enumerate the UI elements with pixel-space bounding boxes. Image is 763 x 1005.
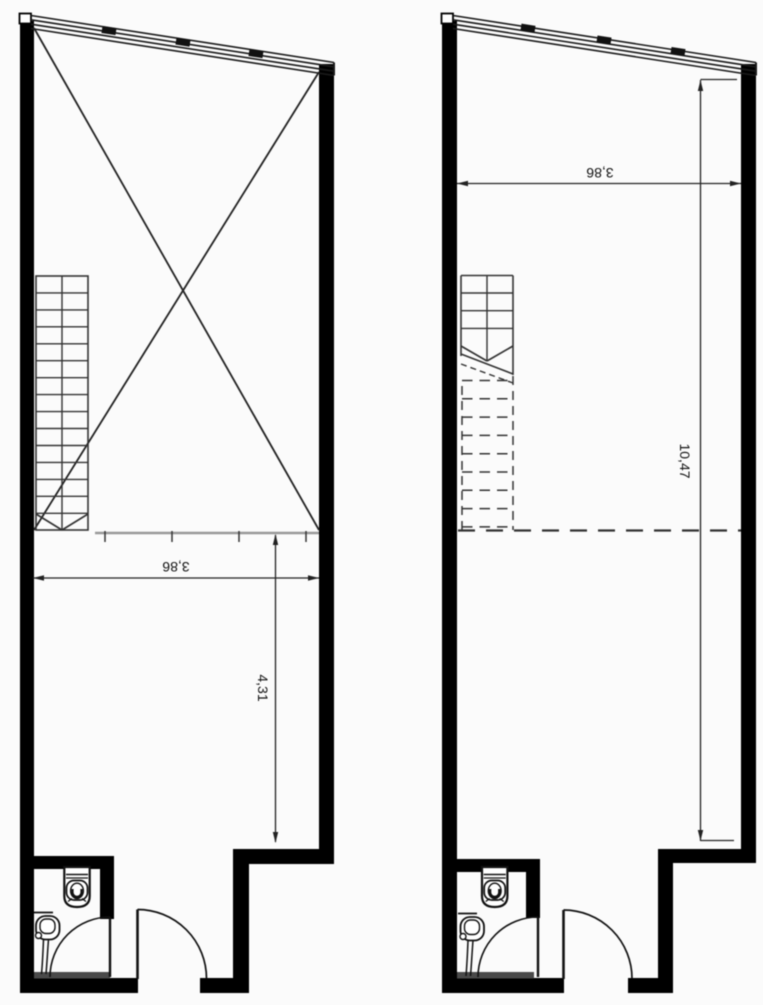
svg-text:3,86: 3,86	[586, 165, 613, 181]
svg-text:3,86: 3,86	[162, 559, 189, 575]
svg-text:10,47: 10,47	[677, 443, 693, 478]
svg-text:4,31: 4,31	[255, 674, 271, 701]
